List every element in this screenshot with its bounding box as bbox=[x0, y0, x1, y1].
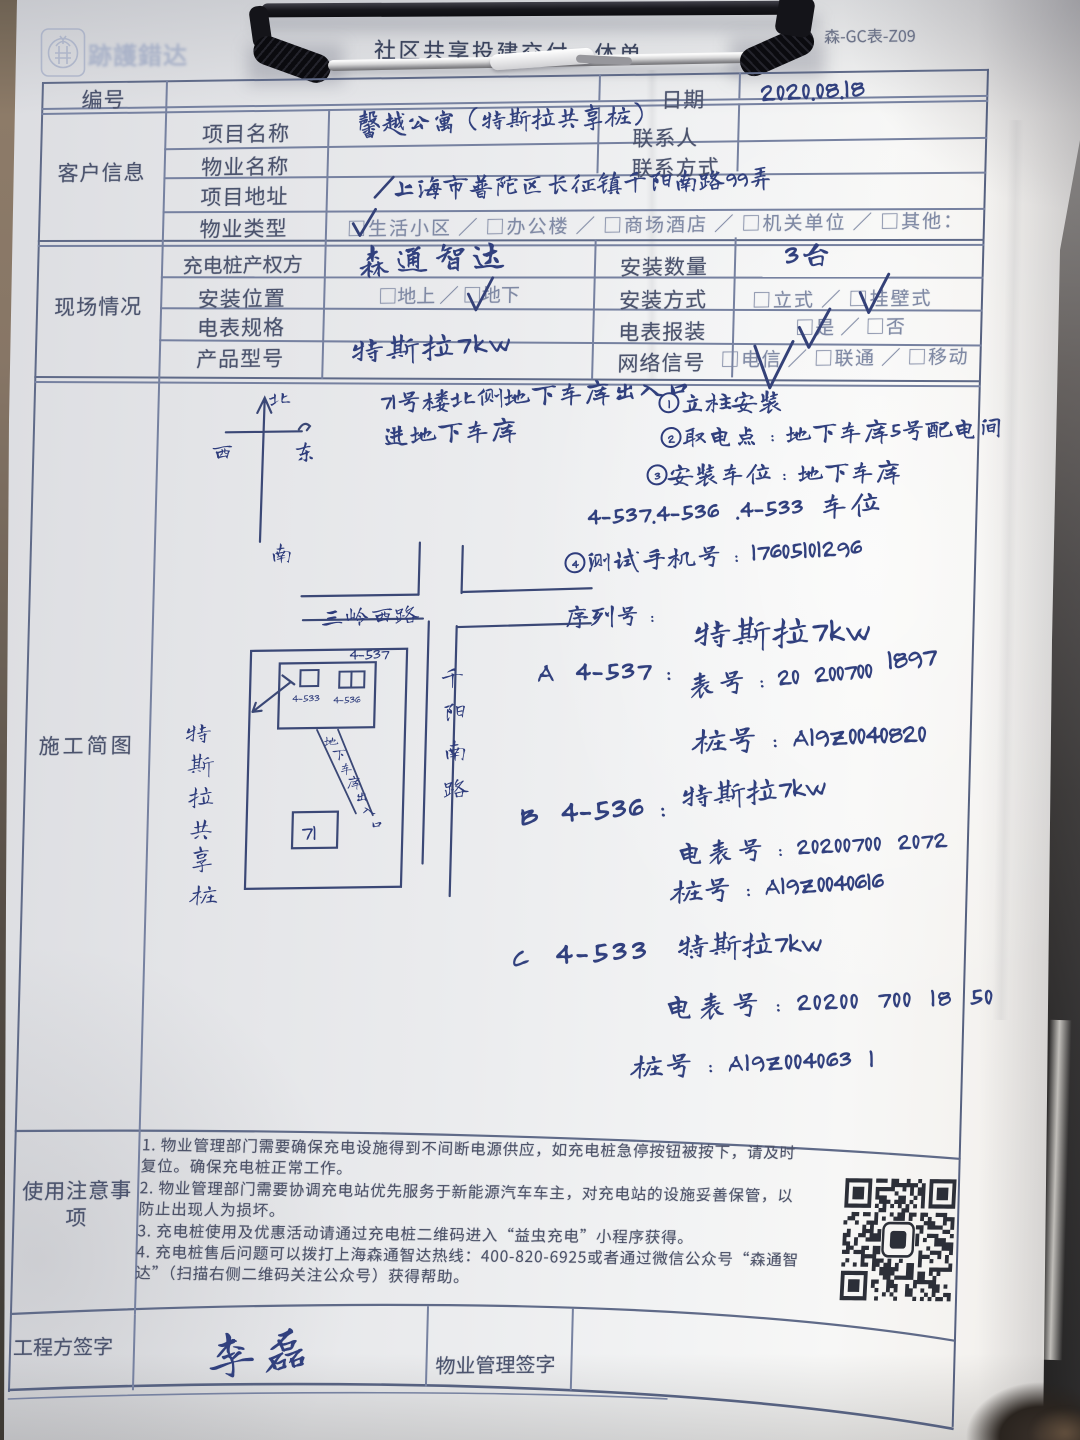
svg-text:南: 南 bbox=[442, 736, 469, 762]
svg-text:入: 入 bbox=[362, 802, 377, 817]
svg-text:阳: 阳 bbox=[441, 698, 468, 724]
svg-text:斯: 斯 bbox=[187, 750, 215, 777]
svg-text:桩: 桩 bbox=[188, 880, 218, 907]
svg-text:4-536: 4-536 bbox=[333, 692, 361, 706]
svg-text:地: 地 bbox=[324, 733, 339, 748]
svg-text:特: 特 bbox=[185, 718, 213, 745]
svg-text:下: 下 bbox=[331, 747, 346, 762]
svg-text:西: 西 bbox=[210, 438, 235, 462]
svg-text:北: 北 bbox=[267, 385, 292, 409]
svg-text:路: 路 bbox=[443, 774, 470, 800]
svg-text:4-533: 4-533 bbox=[292, 691, 320, 705]
svg-text:东: 东 bbox=[292, 438, 317, 462]
svg-text:拉: 拉 bbox=[187, 782, 215, 809]
svg-text:口: 口 bbox=[369, 816, 384, 831]
svg-text:共: 共 bbox=[187, 814, 215, 841]
svg-text:71: 71 bbox=[300, 819, 316, 846]
svg-text:车: 车 bbox=[339, 760, 354, 775]
svg-text:千: 千 bbox=[439, 664, 466, 690]
svg-text:享: 享 bbox=[188, 844, 216, 872]
svg-text:南: 南 bbox=[269, 539, 294, 563]
svg-text:三岭西路: 三岭西路 bbox=[320, 599, 420, 629]
svg-text:出: 出 bbox=[354, 788, 369, 803]
